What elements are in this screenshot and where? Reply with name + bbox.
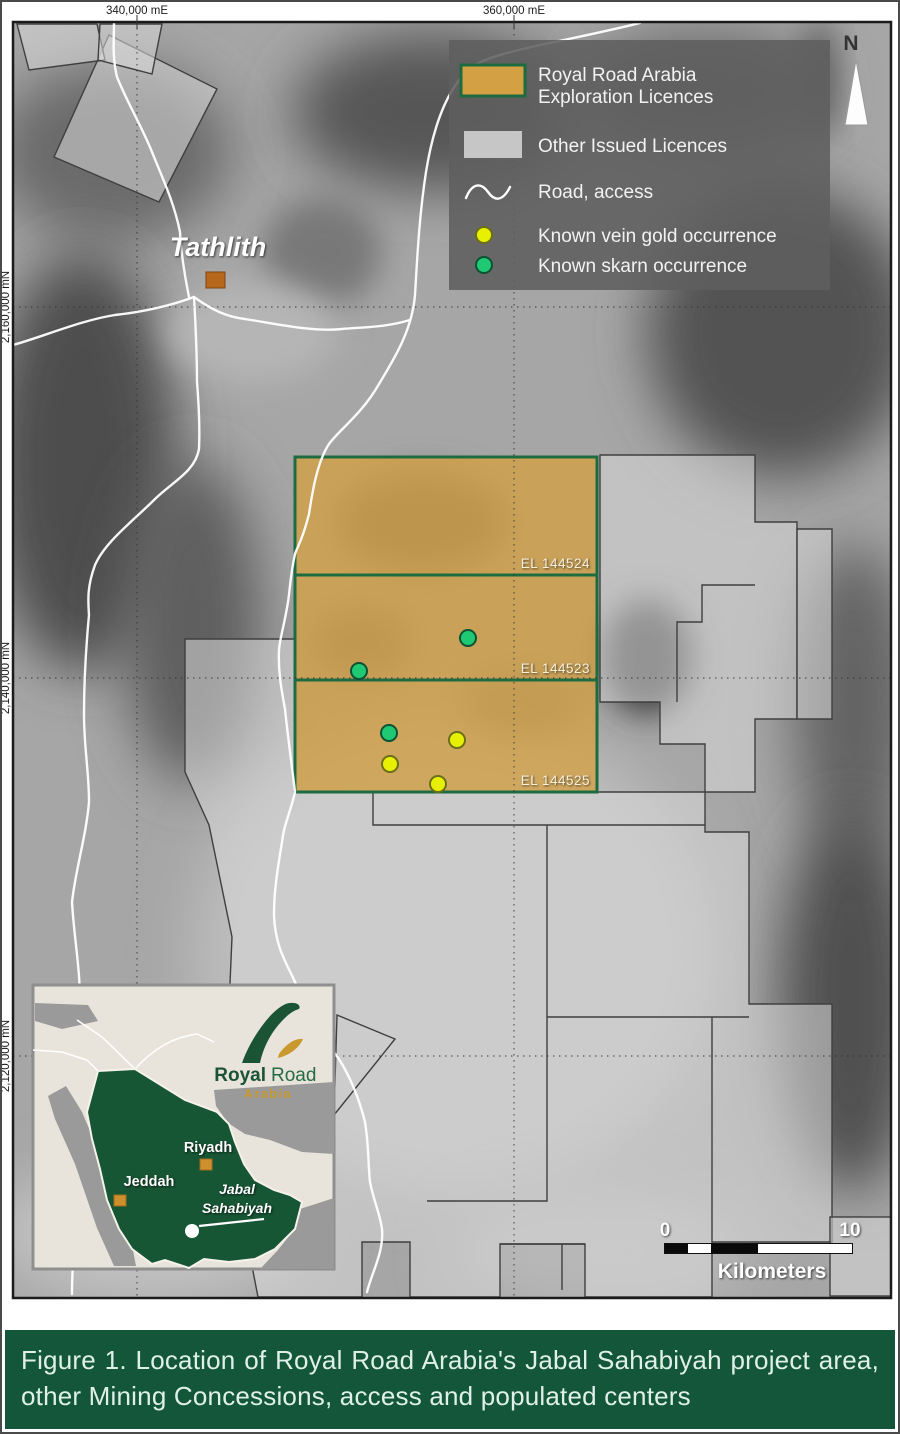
location-map: EL 144524 EL 144523 EL 144525 Tathlith R… <box>2 2 900 1317</box>
logo-brand-light: Road <box>271 1065 316 1086</box>
scale-bar-track <box>665 1244 853 1254</box>
licence-label: EL 144523 <box>521 661 590 676</box>
scale-end: 10 <box>839 1220 860 1241</box>
vein-gold-occurrence-dot <box>382 756 398 772</box>
skarn-occurrence-symbol <box>476 257 492 273</box>
legend-label: Exploration Licences <box>538 87 713 108</box>
map-legend: Royal Road Arabia Exploration Licences O… <box>449 40 830 290</box>
legend-label: Road, access <box>538 182 653 203</box>
logo-region: Arabia <box>244 1087 292 1101</box>
licence-polygon <box>797 529 832 719</box>
city-label-jeddah: Jeddah <box>124 1174 175 1190</box>
town-marker <box>206 272 225 288</box>
skarn-occurrence-dot <box>460 630 476 646</box>
project-label: Jabal <box>219 1181 256 1197</box>
northing-label: 2,160,000 mN <box>2 271 12 343</box>
project-label: Sahabiyah <box>202 1200 272 1216</box>
town-label: Tathlith <box>170 232 266 262</box>
skarn-occurrence-dot <box>381 725 397 741</box>
exploration-licences: EL 144524 EL 144523 EL 144525 <box>295 457 597 792</box>
skarn-occurrence-dot <box>351 663 367 679</box>
scale-start: 0 <box>660 1220 671 1241</box>
legend-label: Other Issued Licences <box>538 136 727 157</box>
legend-label: Royal Road Arabia <box>538 65 697 86</box>
logo-brand-bold: Royal <box>214 1065 266 1086</box>
figure-page: EL 144524 EL 144523 EL 144525 Tathlith R… <box>0 0 900 1434</box>
legend-label: Known skarn occurrence <box>538 256 747 277</box>
legend-label: Known vein gold occurrence <box>538 226 777 247</box>
licence-label: EL 144525 <box>521 773 590 788</box>
city-marker-jeddah <box>114 1195 126 1206</box>
exploration-licence-swatch <box>461 65 525 96</box>
gold-occurrence-symbol <box>476 227 492 243</box>
easting-label: 360,000 mE <box>483 5 545 17</box>
city-label-riyadh: Riyadh <box>184 1140 232 1156</box>
vein-gold-occurrence-dot <box>430 776 446 792</box>
issued-licence-swatch <box>464 131 522 158</box>
scale-bar-segment <box>711 1244 758 1253</box>
easting-label: 340,000 mE <box>106 5 168 17</box>
northing-label: 2,140,000 mN <box>2 642 12 714</box>
vein-gold-occurrence-dot <box>449 732 465 748</box>
scale-bar-segment <box>665 1244 688 1253</box>
scale-unit: Kilometers <box>718 1260 827 1283</box>
inset-map: Royal Road Arabia Riyadh Jeddah Jabal Sa… <box>33 985 334 1269</box>
project-location-marker <box>185 1224 199 1238</box>
northing-label: 2,120,000 mN <box>2 1020 12 1092</box>
city-marker-riyadh <box>200 1159 212 1170</box>
north-label: N <box>843 32 858 55</box>
licence-label: EL 144524 <box>521 556 590 571</box>
figure-caption: Figure 1. Location of Royal Road Arabia'… <box>5 1330 895 1429</box>
